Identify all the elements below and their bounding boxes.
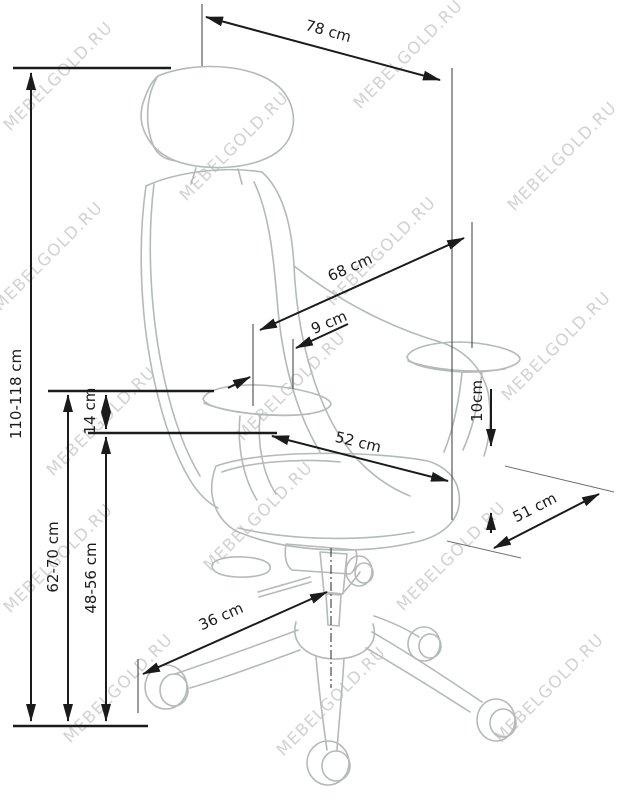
watermark-text: MEBELGOLD.RU: [491, 630, 608, 747]
watermark-text: MEBELGOLD.RU: [498, 288, 615, 405]
watermark-layer: MEBELGOLD.RU MEBELGOLD.RU MEBELGOLD.RU M…: [0, 0, 617, 760]
watermark-text: MEBELGOLD.RU: [200, 458, 317, 575]
label-overall-depth: 78 cm: [303, 16, 353, 46]
diagram-canvas: MEBELGOLD.RU MEBELGOLD.RU MEBELGOLD.RU M…: [0, 0, 617, 800]
watermark-text: MEBELGOLD.RU: [504, 98, 617, 215]
watermark-text: MEBELGOLD.RU: [350, 0, 467, 113]
label-armrest-height: 62-70 cm: [44, 521, 62, 592]
watermark-text: MEBELGOLD.RU: [393, 498, 510, 615]
watermark-text: MEBELGOLD.RU: [0, 198, 107, 315]
label-seat-width: 52 cm: [333, 428, 383, 456]
extension-seat-depth-top: [505, 466, 614, 492]
label-seat-cushion: 10cm: [468, 380, 486, 422]
chair-gas-lift: [295, 552, 375, 659]
chair-base: [175, 572, 482, 750]
watermark-text: MEBELGOLD.RU: [43, 363, 160, 480]
watermark-text: MEBELGOLD.RU: [0, 18, 117, 135]
watermark-text: MEBELGOLD.RU: [273, 643, 390, 760]
label-armrest-to-seat: 14 cm: [81, 388, 99, 435]
dimension-diagram: MEBELGOLD.RU MEBELGOLD.RU MEBELGOLD.RU M…: [0, 0, 617, 800]
watermark-text: MEBELGOLD.RU: [323, 193, 440, 310]
watermark-text: MEBELGOLD.RU: [233, 328, 350, 445]
watermark-text: MEBELGOLD.RU: [60, 630, 177, 747]
label-total-height: 110-118 cm: [7, 349, 25, 439]
dim-armrest-pad-arrow-left: [228, 377, 250, 388]
chair-seat: [212, 453, 460, 550]
label-seat-height: 48-56 cm: [82, 542, 100, 613]
label-seat-depth: 51 cm: [510, 489, 560, 526]
label-base-radius: 36 cm: [196, 599, 246, 634]
